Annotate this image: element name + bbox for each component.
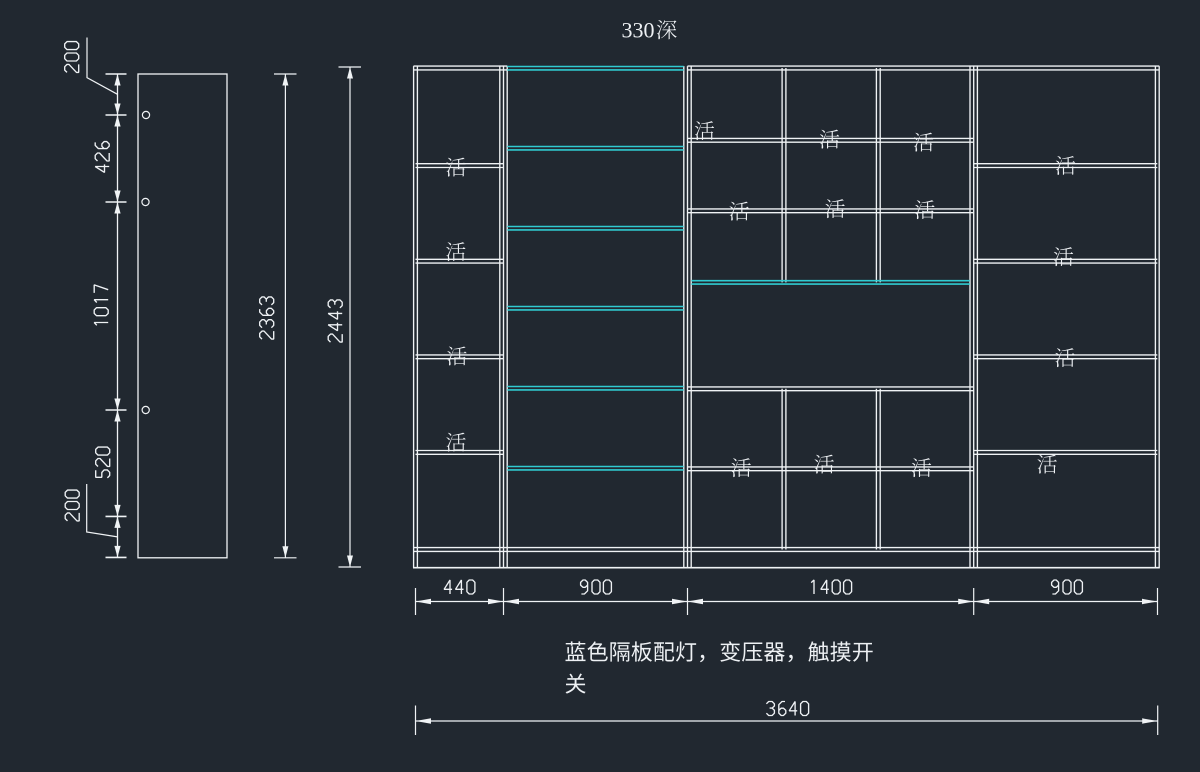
- svg-text:330: 330: [622, 18, 655, 43]
